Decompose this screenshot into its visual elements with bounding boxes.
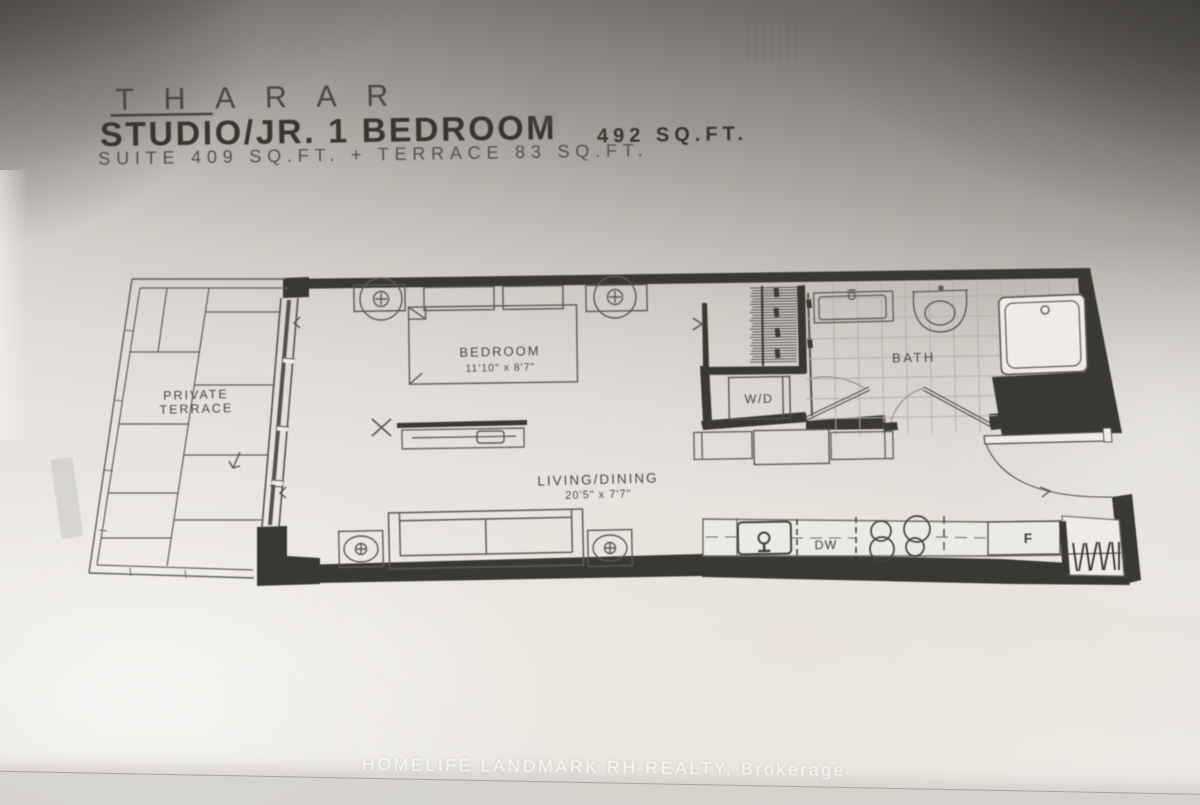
svg-text:HOMELIFE LANDMARK RH REALTY, B: HOMELIFE LANDMARK RH REALTY, Brokerage: [362, 754, 846, 780]
svg-text:F: F: [1024, 530, 1033, 546]
svg-text:20'5" x 7'7": 20'5" x 7'7": [565, 488, 632, 502]
svg-text:W/D: W/D: [744, 392, 773, 407]
svg-text:LIVING/DINING: LIVING/DINING: [537, 470, 659, 488]
svg-text:BATH: BATH: [892, 349, 936, 365]
svg-text:DW: DW: [814, 538, 837, 552]
svg-text:BEDROOM: BEDROOM: [459, 343, 540, 360]
svg-text:11'10" x 8'7": 11'10" x 8'7": [465, 361, 535, 374]
svg-text:TERRACE: TERRACE: [159, 401, 233, 417]
